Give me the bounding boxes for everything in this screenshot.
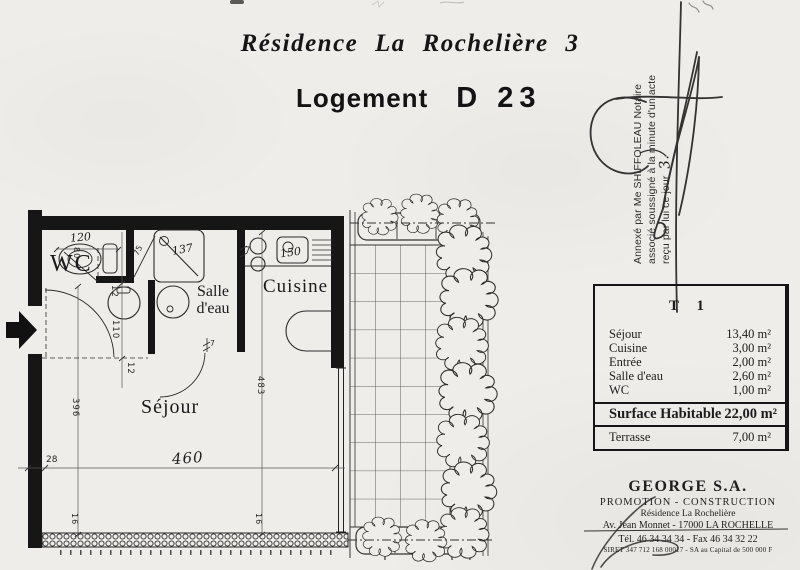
dim-110: 110 — [110, 320, 120, 339]
company-residence: Résidence La Rochelière — [580, 509, 796, 519]
scanned-floorplan-page: Résidence La Rochelière 3 LogementD 23 A… — [0, 0, 800, 570]
dim-7-wall: 7 — [245, 246, 250, 256]
table-row: Salle d'eau2,60 m² — [609, 369, 771, 383]
dim-12-top: 12 — [109, 285, 119, 298]
table-row: Entrée2,00 m² — [609, 355, 771, 369]
dim-7-door: 7 — [210, 339, 215, 348]
table-header: T 1 — [595, 298, 785, 315]
company-siret: SIRET 347 712 168 00017 - SA au Capital … — [580, 546, 796, 554]
surface-habitable-row: Surface Habitable22,00 m² — [595, 402, 785, 427]
company-address: Av. Jean Monnet - 17000 LA ROCHELLE — [580, 520, 796, 531]
dim-28: 28 — [46, 455, 57, 465]
table-row: Cuisine3,00 m² — [609, 341, 771, 355]
company-activity: PROMOTION - CONSTRUCTION — [580, 497, 796, 508]
dim-16-left: 16 — [70, 513, 79, 525]
notary-line: associé soussigné à la minute d'un acte — [646, 46, 660, 264]
dim-16-right: 16 — [254, 513, 263, 525]
dim-120: 120 — [69, 230, 91, 245]
page-subtitle: LogementD 23 — [296, 82, 542, 115]
logement-number: D 23 — [456, 82, 541, 114]
table-row: WC1,00 m² — [609, 383, 771, 397]
room-label-cuisine: Cuisine — [263, 276, 328, 298]
dim-460: 460 — [171, 448, 204, 468]
notary-line: reçu par lui ce jour3. — [659, 46, 674, 264]
company-block: GEORGE S.A. PROMOTION - CONSTRUCTION Rés… — [580, 478, 796, 554]
dim-12-bottom: 12 — [125, 362, 135, 375]
dim-80: 80 — [72, 247, 81, 259]
scan-artifacts — [230, 0, 464, 7]
table-rows: Séjour13,40 m² Cuisine3,00 m² Entrée2,00… — [609, 327, 771, 397]
logement-label: Logement — [296, 83, 428, 113]
room-label-salle-deau: Salle d'eau — [184, 283, 242, 317]
table-row: Séjour13,40 m² — [609, 327, 771, 341]
dim-396: 396 — [70, 398, 80, 417]
page-title: Résidence La Rochelière 3 — [240, 30, 580, 58]
company-phone: Tél. 46 34 34 34 - Fax 46 34 32 22 — [580, 534, 796, 545]
area-table: T 1 Séjour13,40 m² Cuisine3,00 m² Entrée… — [593, 284, 789, 451]
dim-483: 483 — [255, 376, 265, 395]
notary-annotation: Annexé par Me SHIFFOLEAU Notaire associé… — [632, 46, 674, 264]
terrace — [348, 194, 498, 562]
room-label-sejour: Séjour — [141, 396, 199, 419]
company-name: GEORGE S.A. — [580, 478, 796, 496]
terrasse-row: Terrasse7,00 m² — [595, 427, 785, 445]
handwritten-date: 3. — [658, 154, 673, 169]
entrance-arrow-icon — [6, 311, 37, 349]
notary-line: Annexé par Me SHIFFOLEAU Notaire — [632, 46, 646, 264]
